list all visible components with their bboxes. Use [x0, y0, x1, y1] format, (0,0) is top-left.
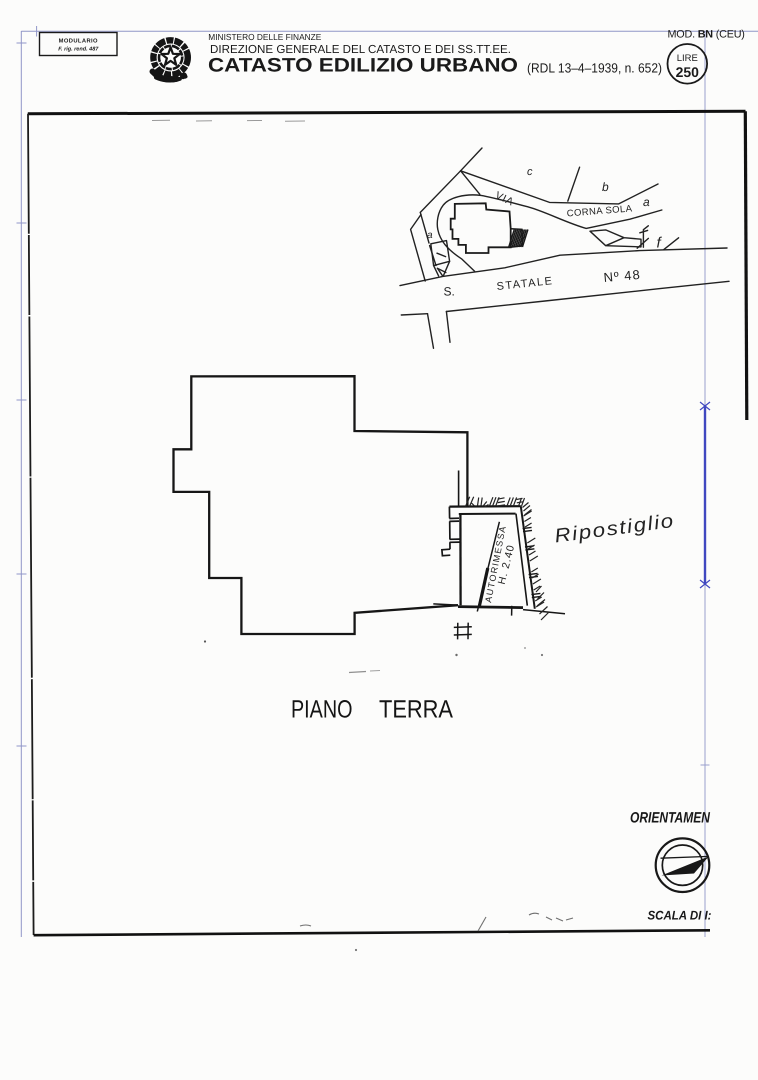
- svg-text:F. rig. rend. 487: F. rig. rend. 487: [58, 47, 99, 53]
- svg-text:MINISTERO DELLE FINANZE: MINISTERO DELLE FINANZE: [208, 32, 321, 42]
- svg-text:(RDL 13–4–1939, n. 652): (RDL 13–4–1939, n. 652): [527, 61, 662, 76]
- svg-text:CATASTO EDILIZIO URBANO: CATASTO EDILIZIO URBANO: [208, 55, 518, 77]
- svg-text:a: a: [427, 230, 433, 241]
- svg-text:TERRA: TERRA: [379, 696, 453, 724]
- svg-text:MODULARIO: MODULARIO: [59, 38, 98, 45]
- svg-text:b: b: [602, 180, 609, 194]
- svg-text:PIANO: PIANO: [291, 696, 353, 724]
- svg-text:MOD. BN (CEU): MOD. BN (CEU): [668, 29, 745, 41]
- svg-text:250: 250: [676, 64, 700, 80]
- svg-text:SCALA DI I:: SCALA DI I:: [648, 909, 712, 923]
- svg-text:LIRE: LIRE: [677, 53, 698, 64]
- svg-text:c: c: [527, 166, 533, 178]
- svg-text:a: a: [643, 195, 650, 209]
- svg-text:ORIENTAMEN: ORIENTAMEN: [630, 810, 711, 827]
- svg-text:S.: S.: [444, 285, 455, 299]
